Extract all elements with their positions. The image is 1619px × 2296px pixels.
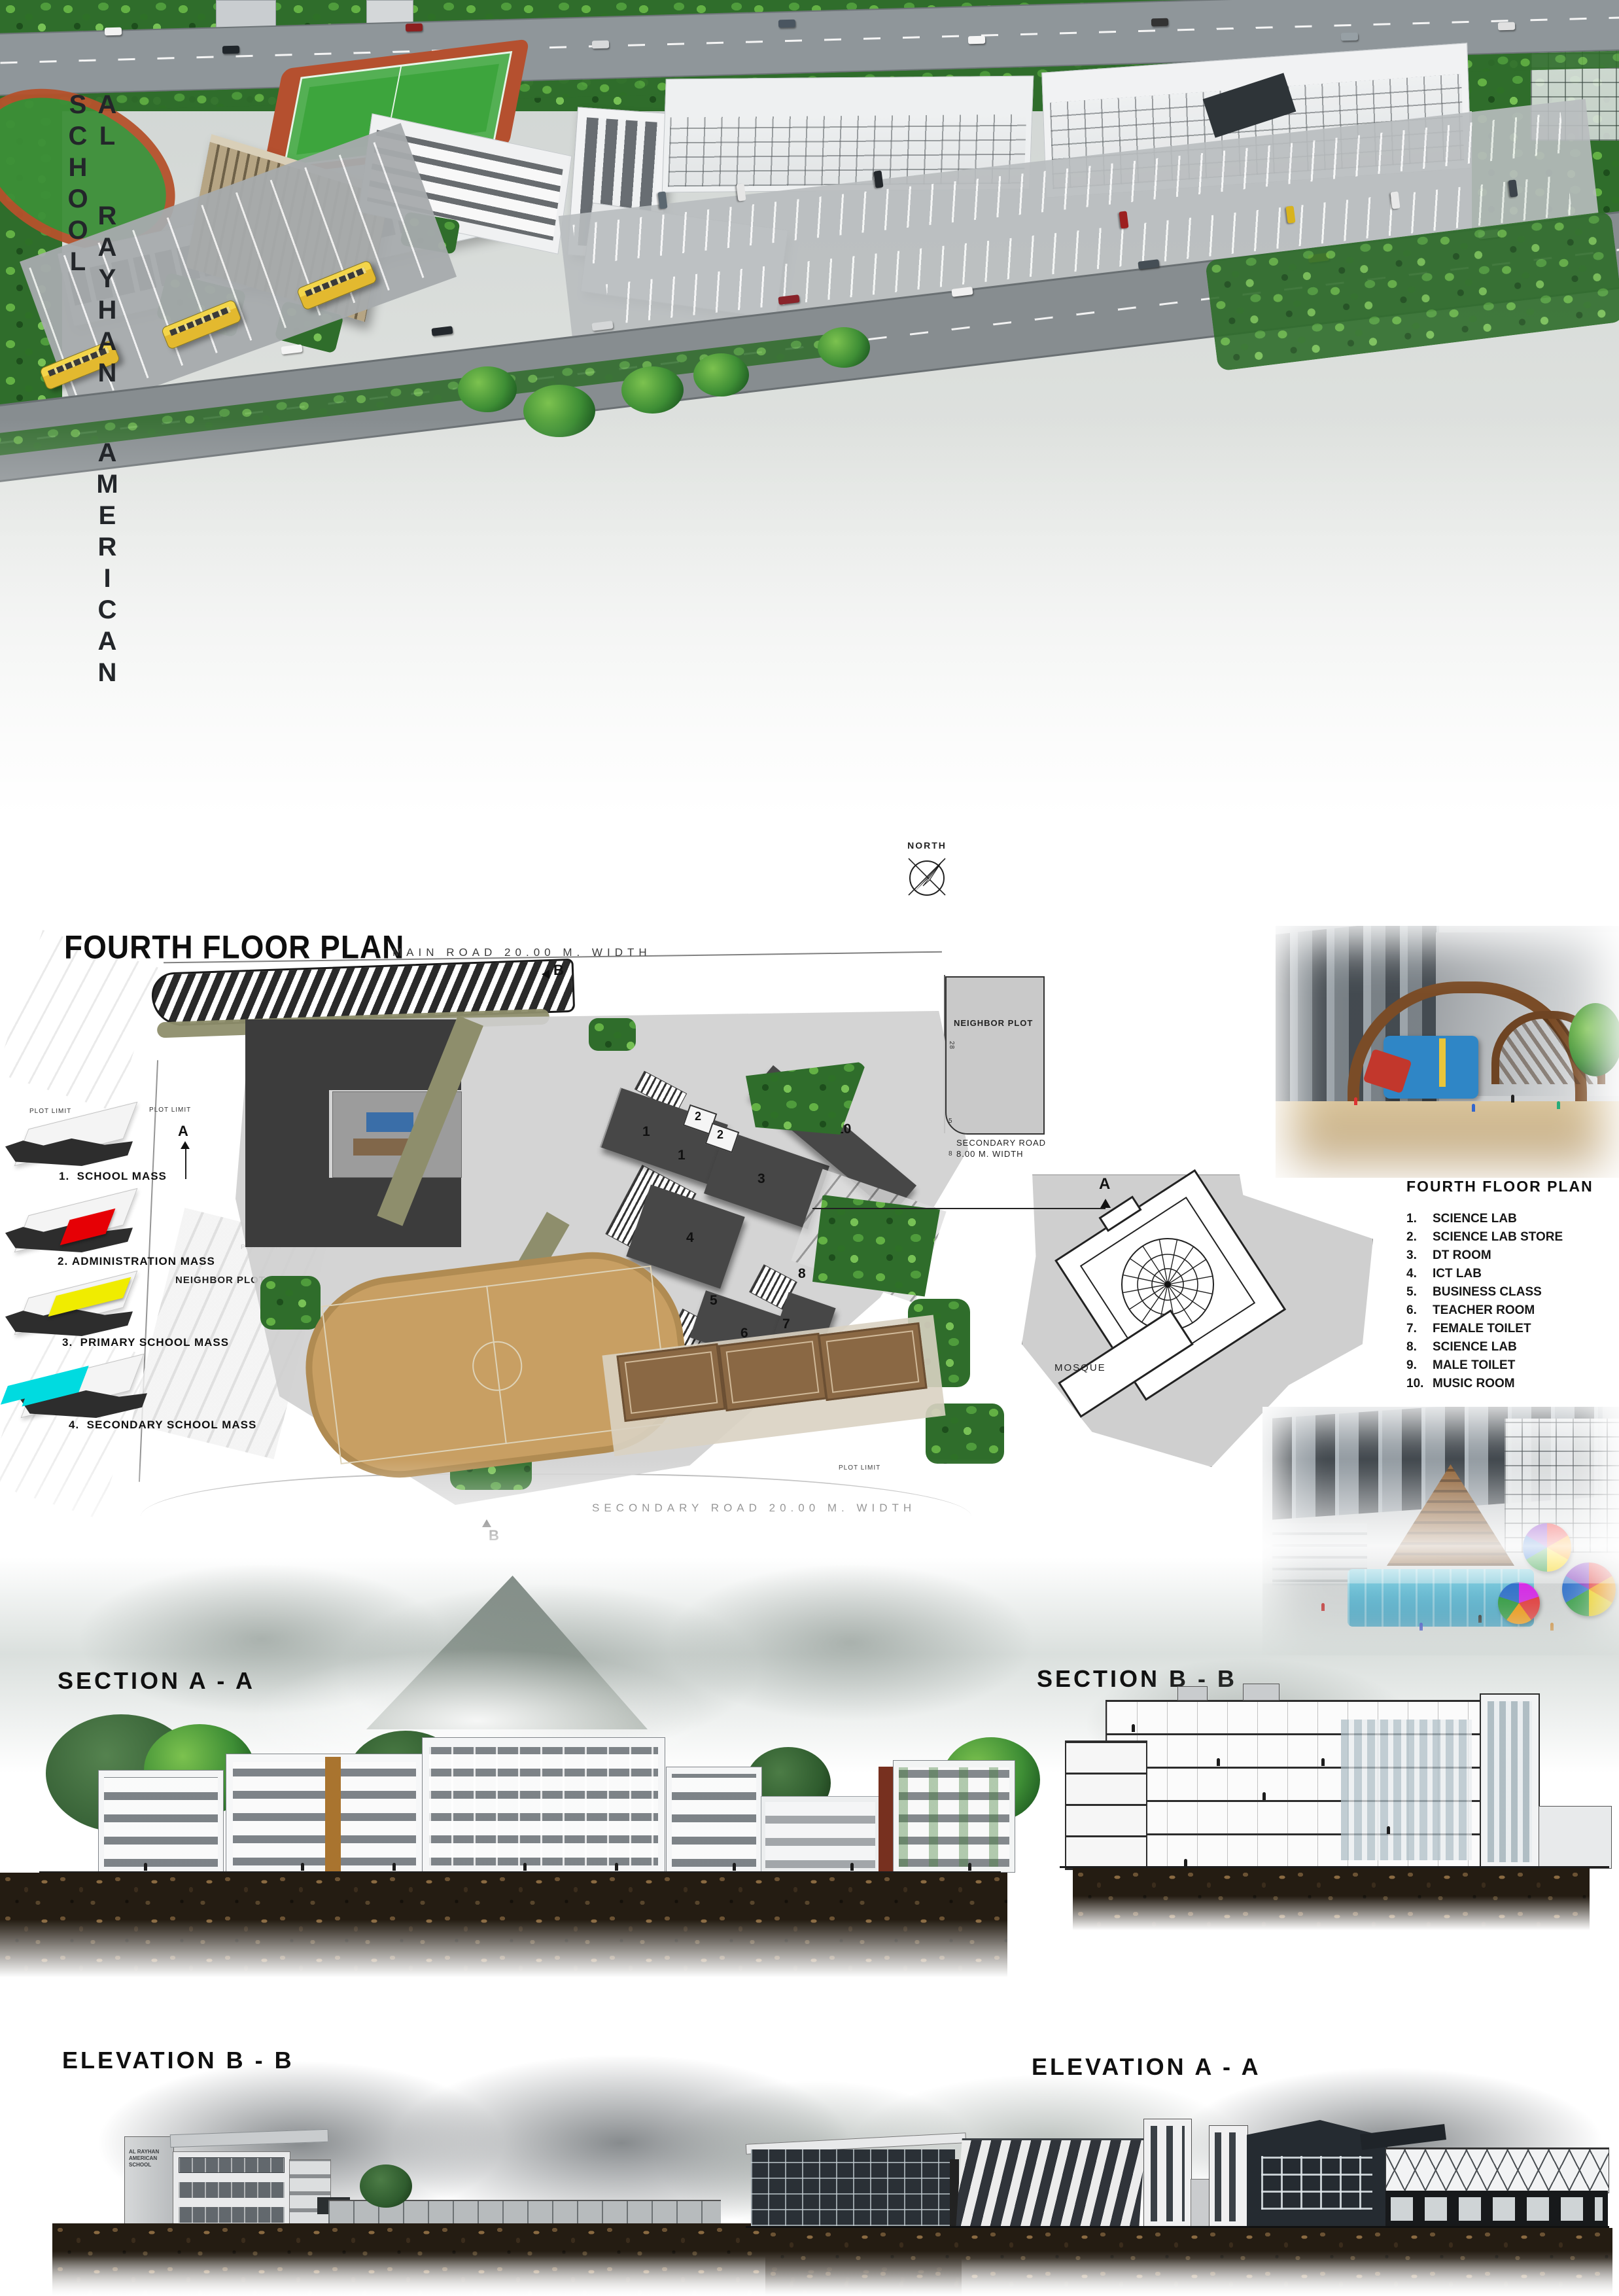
bottom-fade <box>0 2251 1619 2296</box>
legend-num: 2. <box>1406 1228 1433 1246</box>
mass-4-text: SECONDARY SCHOOL MASS <box>87 1419 257 1431</box>
section-a-title: SECTION A - A <box>58 1667 255 1695</box>
basketball-court <box>718 1333 827 1411</box>
legend-text: SCIENCE LAB <box>1433 1338 1517 1356</box>
render-vignette <box>1276 926 1619 1178</box>
window-rows <box>672 1774 756 1867</box>
playground-render <box>1276 926 1619 1178</box>
elevation-a-drawing <box>746 2113 1616 2231</box>
legend-num: 10. <box>1406 1375 1433 1393</box>
section-building <box>666 1767 762 1873</box>
roof-unit <box>1243 1684 1280 1701</box>
section-main-block <box>1105 1700 1481 1870</box>
section-marker-b: B <box>553 962 564 979</box>
legend-item: 1.SCIENCE LAB <box>1406 1210 1619 1228</box>
section-line-a <box>812 1208 1105 1209</box>
school-sign-tower: AL RAYHAN AMERICAN SCHOOL <box>124 2136 174 2229</box>
legend-text: MUSIC ROOM <box>1433 1375 1515 1393</box>
compass-icon <box>903 853 950 900</box>
tree <box>693 353 749 397</box>
person-figure <box>1262 1792 1266 1800</box>
glazing <box>1341 1720 1472 1860</box>
dimension-label: 5 <box>949 1118 953 1125</box>
hero-fade <box>0 419 1619 851</box>
window-band <box>179 2207 285 2223</box>
legend-num: 7. <box>1406 1320 1433 1338</box>
secondary-road-8-line1: SECONDARY ROAD <box>956 1137 1046 1148</box>
car <box>222 46 239 54</box>
room-number: 2 <box>695 1110 701 1123</box>
legend-num: 1. <box>1406 1210 1433 1228</box>
tower-glazing <box>1488 1701 1532 1862</box>
section-b-ground <box>1073 1868 1590 1930</box>
dimension-label: 28 <box>948 1041 955 1050</box>
window-strips <box>1151 2126 1185 2221</box>
section-tower <box>1480 1693 1540 1870</box>
person-figure <box>1217 1758 1220 1766</box>
person-figure <box>1321 1758 1325 1766</box>
legend-text: DT ROOM <box>1433 1246 1491 1265</box>
section-arrow-a <box>181 1141 190 1149</box>
mosque-label: MOSQUE <box>1054 1362 1106 1373</box>
window-rows <box>765 1802 875 1868</box>
neighbor-plot-left-label: NEIGHBOR PLOT <box>175 1275 266 1286</box>
person-figure <box>144 1863 147 1871</box>
person-figure <box>850 1863 854 1871</box>
window-band <box>179 2157 285 2173</box>
section-step-wing <box>1065 1740 1147 1870</box>
section-a-ground <box>0 1873 1007 1977</box>
cloud <box>667 1564 1034 1721</box>
mass-3-text: PRIMARY SCHOOL MASS <box>80 1336 229 1349</box>
court-lines <box>625 1351 718 1414</box>
legend-item: 2.SCIENCE LAB STORE <box>1406 1228 1619 1246</box>
storefront-windows <box>1391 2197 1603 2221</box>
sign-line: AL RAYHAN <box>129 2149 159 2155</box>
accent-slab-tan <box>325 1757 341 1871</box>
car <box>592 41 609 49</box>
neighbor-plot-right-label: NEIGHBOR PLOT <box>954 1018 1033 1028</box>
legend-item: 5.BUSINESS CLASS <box>1406 1283 1619 1301</box>
legend-text: ICT LAB <box>1433 1265 1482 1283</box>
legend-text: MALE TOILET <box>1433 1356 1515 1375</box>
window-band <box>179 2182 285 2198</box>
legend-item: 6.TEACHER ROOM <box>1406 1301 1619 1320</box>
secondary-road-8-line2: 8.00 M. WIDTH <box>956 1148 1046 1159</box>
section-building <box>422 1737 665 1873</box>
mass-diagram-3 <box>0 1281 164 1343</box>
dark-base-band <box>1385 2191 1608 2226</box>
legend-text: FEMALE TOILET <box>1433 1320 1531 1338</box>
car <box>1498 22 1515 31</box>
elevation-main-block <box>173 2151 290 2230</box>
person-figure <box>615 1863 618 1871</box>
mass-diagram-1 <box>0 1112 164 1174</box>
tree <box>458 366 517 412</box>
window-rows <box>233 1762 416 1865</box>
link-block <box>1191 2179 1210 2227</box>
basketball-court <box>818 1322 927 1401</box>
legend-num: 3. <box>1406 1246 1433 1265</box>
legend-item: 4.ICT LAB <box>1406 1265 1619 1283</box>
section-marker-a: A <box>178 1123 188 1140</box>
section-arrow-a <box>1100 1199 1111 1208</box>
road-car <box>281 344 302 355</box>
car <box>105 27 122 36</box>
section-marker-a: A <box>1099 1175 1110 1193</box>
section-building-green <box>893 1760 1015 1873</box>
truss-block <box>1385 2147 1609 2193</box>
dimension-label: 8 <box>949 1150 953 1157</box>
car <box>1151 18 1168 27</box>
mass-diagram-4 <box>0 1364 164 1426</box>
parked-car <box>657 191 667 209</box>
neighbor-plot-right <box>945 976 1045 1135</box>
person-figure <box>1132 1724 1135 1732</box>
secondary-road-8-label: SECONDARY ROAD 8.00 M. WIDTH <box>956 1137 1046 1159</box>
section-building <box>98 1770 224 1873</box>
legend-item: 7.FEMALE TOILET <box>1406 1320 1619 1338</box>
plan-trees <box>260 1276 321 1330</box>
room-number: 1 <box>642 1124 650 1140</box>
person-figure <box>1387 1826 1390 1834</box>
legend-item: 8.SCIENCE LAB <box>1406 1338 1619 1356</box>
mass-1-num: 1. <box>59 1170 69 1182</box>
section-building <box>226 1754 423 1873</box>
legend-num: 8. <box>1406 1338 1433 1356</box>
mass-3-label: 3. PRIMARY SCHOOL MASS <box>62 1336 229 1349</box>
person-figure <box>392 1863 396 1871</box>
room-number: 2 <box>717 1128 723 1142</box>
section-a-drawing <box>26 1701 1007 1878</box>
tree <box>818 327 870 368</box>
legend-text: SCIENCE LAB <box>1433 1210 1517 1228</box>
section-link <box>761 1796 880 1873</box>
roof-unit <box>1177 1686 1208 1701</box>
court-lines <box>726 1341 820 1404</box>
mass-2-text: ADMINISTRATION MASS <box>72 1255 215 1267</box>
car <box>1341 33 1358 41</box>
window-rows <box>104 1777 218 1867</box>
person-figure <box>968 1863 971 1871</box>
person-figure <box>301 1863 304 1871</box>
accent-slab-red <box>879 1767 893 1871</box>
car <box>968 36 985 44</box>
window-grid <box>1261 2156 1372 2210</box>
fins-block <box>956 2138 1145 2228</box>
legend-num: 9. <box>1406 1356 1433 1375</box>
elevation-annex <box>289 2159 331 2230</box>
hero-render <box>0 0 1619 851</box>
car <box>778 20 795 28</box>
white-tower <box>1143 2119 1192 2227</box>
legend-num: 5. <box>1406 1283 1433 1301</box>
legend-num: 6. <box>1406 1301 1433 1320</box>
section-arrow-b <box>542 970 549 979</box>
room-number: 7 <box>782 1316 790 1332</box>
school-mass-plan-left <box>245 1178 461 1247</box>
mass-2-label: 2. ADMINISTRATION MASS <box>58 1255 215 1268</box>
section-b-drawing <box>1047 1685 1616 1875</box>
legend-item: 9.MALE TOILET <box>1406 1356 1619 1375</box>
section-line-a <box>185 1149 186 1179</box>
presentation-board: AL RAYHAN AMERICAN SCHOOL NORTH FOURTH F… <box>0 0 1619 2296</box>
legend-item: 3.DT ROOM <box>1406 1246 1619 1265</box>
basketball-court <box>616 1343 725 1422</box>
room-number: 5 <box>710 1293 718 1309</box>
glass-block <box>751 2149 955 2226</box>
sign-line: AMERICAN <box>129 2155 159 2162</box>
legend-num: 4. <box>1406 1265 1433 1283</box>
car <box>406 24 423 32</box>
legend-text: TEACHER ROOM <box>1433 1301 1535 1320</box>
sign-line: SCHOOL <box>129 2162 159 2168</box>
court-lines <box>826 1330 920 1393</box>
legend-item: 10.MUSIC ROOM <box>1406 1375 1619 1393</box>
tree <box>621 366 684 414</box>
room-number: 8 <box>798 1266 806 1282</box>
legend-title: FOURTH FLOOR PLAN <box>1406 1178 1619 1195</box>
mass-2-num: 2. <box>58 1255 68 1267</box>
mass-1-text: SCHOOL MASS <box>77 1170 167 1182</box>
room-number: 4 <box>686 1230 694 1246</box>
white-tower <box>1209 2125 1248 2227</box>
mass-4-num: 4. <box>69 1419 79 1431</box>
mass-4-label: 4. SECONDARY SCHOOL MASS <box>69 1419 256 1432</box>
legend-text: BUSINESS CLASS <box>1433 1283 1542 1301</box>
window-strips <box>1215 2132 1242 2221</box>
roof-accent <box>1360 2124 1446 2150</box>
section-annex <box>1539 1806 1612 1869</box>
person-figure <box>523 1863 527 1871</box>
green-wall <box>899 1767 1009 1867</box>
floor-plan-legend: FOURTH FLOOR PLAN 1.SCIENCE LAB 2.SCIENC… <box>1406 1178 1619 1393</box>
person-figure <box>733 1863 736 1871</box>
north-indicator: NORTH <box>897 840 956 912</box>
north-label: NORTH <box>897 840 956 851</box>
legend-text: SCIENCE LAB STORE <box>1433 1228 1563 1246</box>
room-number: 3 <box>757 1171 765 1187</box>
mass-diagram-2 <box>0 1199 164 1261</box>
courtyard-pool <box>366 1112 413 1132</box>
room-number: 1 <box>678 1148 686 1163</box>
mass-1-label: 1. SCHOOL MASS <box>59 1170 167 1183</box>
tree <box>360 2164 412 2208</box>
road-car <box>431 326 453 336</box>
mass-3-num: 3. <box>62 1336 73 1349</box>
roofline <box>170 2129 329 2147</box>
window-mullions <box>429 1747 658 1865</box>
school-name-vertical: AL RAYHAN AMERICAN SCHOOL <box>63 90 122 853</box>
plan-trees <box>589 1018 636 1051</box>
